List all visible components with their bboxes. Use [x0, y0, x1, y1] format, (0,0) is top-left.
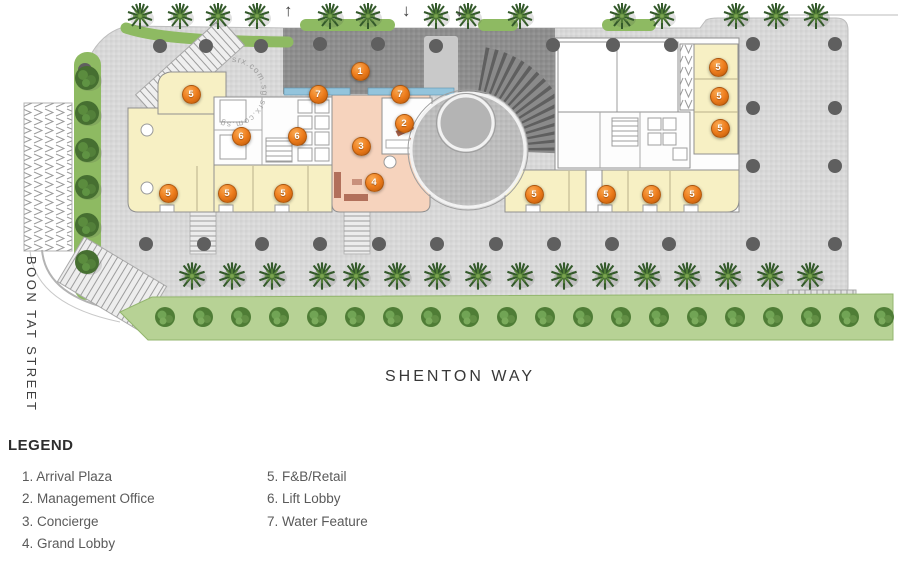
plan-marker-5: 5: [711, 119, 730, 138]
plan-marker-5: 5: [182, 85, 201, 104]
traffic-arrow-icon: ↓: [455, 0, 464, 22]
site-plan-graphic: srx.com.sg srx.com.sg: [0, 0, 900, 420]
plan-marker-5: 5: [159, 184, 178, 203]
legend-item: 1. Arrival Plaza: [22, 466, 155, 488]
plan-marker-5: 5: [683, 185, 702, 204]
plan-marker-5: 5: [525, 185, 544, 204]
plan-marker-2: 2: [395, 114, 414, 133]
legend-column-1: 1. Arrival Plaza 2. Management Office 3.…: [22, 466, 155, 556]
plan-marker-5: 5: [710, 87, 729, 106]
plan-marker-6: 6: [232, 127, 251, 146]
plan-marker-5: 5: [709, 58, 728, 77]
legend-title: LEGEND: [8, 437, 74, 454]
legend-column-2: 5. F&B/Retail 6. Lift Lobby 7. Water Fea…: [267, 466, 368, 533]
legend-item: 2. Management Office: [22, 488, 155, 510]
street-label-boon-tat: BOON TAT STREET: [24, 256, 39, 412]
plan-marker-5: 5: [218, 184, 237, 203]
plan-marker-3: 3: [352, 137, 371, 156]
legend-item: 4. Grand Lobby: [22, 533, 155, 555]
plan-marker-5: 5: [274, 184, 293, 203]
traffic-arrow-icon: ↓: [402, 0, 411, 22]
plan-marker-5: 5: [642, 185, 661, 204]
plan-marker-5: 5: [597, 185, 616, 204]
legend-item: 6. Lift Lobby: [267, 488, 368, 510]
legend-item: 5. F&B/Retail: [267, 466, 368, 488]
plan-marker-4: 4: [365, 173, 384, 192]
plan-marker-7: 7: [309, 85, 328, 104]
street-label-shenton-way: SHENTON WAY: [330, 368, 590, 386]
traffic-arrow-icon: ↑: [284, 0, 293, 22]
plan-marker-1: 1: [351, 62, 370, 81]
legend-item: 3. Concierge: [22, 511, 155, 533]
legend-item: 7. Water Feature: [267, 511, 368, 533]
plan-marker-7: 7: [391, 85, 410, 104]
shenton-way-verge: [120, 294, 894, 340]
legend: LEGEND 1. Arrival Plaza 2. Management Of…: [0, 420, 900, 562]
site-plan-page: srx.com.sg srx.com.sg ↑↓↓ 17726634555555…: [0, 0, 900, 562]
plan-marker-6: 6: [288, 127, 307, 146]
